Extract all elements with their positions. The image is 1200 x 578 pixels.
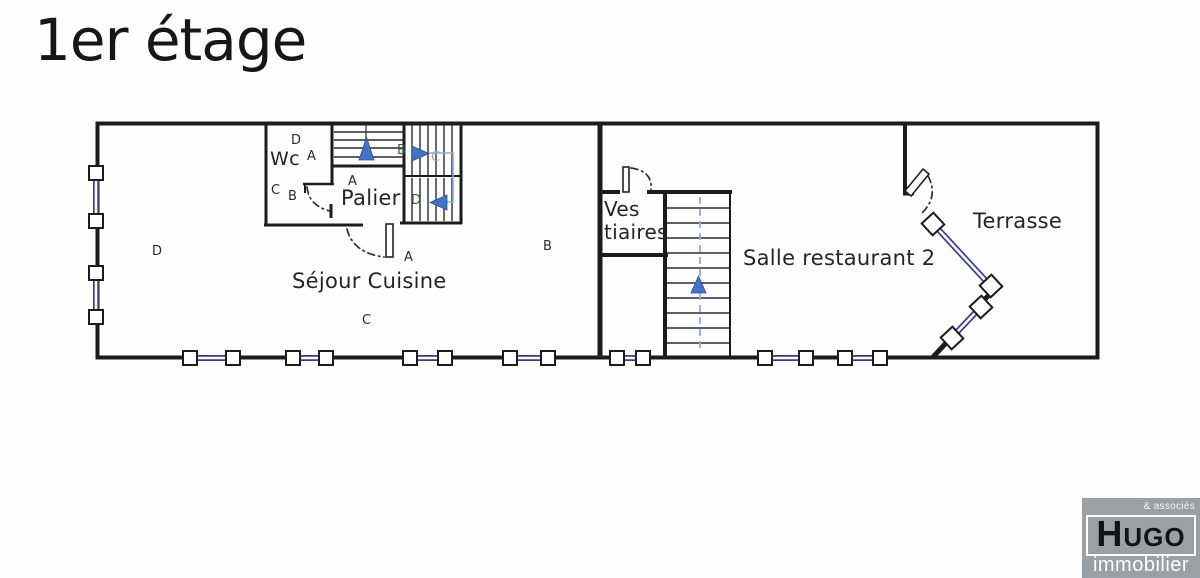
room-label-sejour-cuisine: Séjour Cuisine: [292, 269, 447, 293]
zone-marker: A: [307, 150, 316, 163]
arrow-up-central-stairs: [691, 276, 706, 293]
zone-marker: B: [288, 190, 297, 203]
room-label-vestiaires-line2: tiaires: [604, 221, 668, 244]
zone-marker: C: [431, 151, 440, 164]
terrace-glazing: [922, 213, 1003, 357]
room-label-terrasse: Terrasse: [973, 209, 1062, 233]
arrow-left-lower-run: [430, 195, 447, 210]
floor-plan-drawing: [0, 0, 1200, 578]
brand-subtitle: immobilier: [1082, 554, 1200, 577]
zone-marker: A: [348, 175, 357, 188]
zone-marker: C: [271, 184, 280, 197]
zone-marker: D: [291, 134, 301, 147]
floor-plan-page: 1er étage: [0, 0, 1200, 578]
room-label-wc: Wc: [270, 148, 300, 170]
zone-marker: C: [362, 314, 371, 327]
brand-tagline: & associés: [1144, 501, 1195, 512]
stairs-central: [667, 208, 729, 343]
brand-name-box: HUGO: [1086, 515, 1196, 556]
room-label-vestiaires-line1: Ves: [604, 198, 668, 221]
brand-name: HUGO: [1096, 521, 1185, 550]
zone-marker: B: [543, 240, 552, 253]
zone-marker: D: [152, 245, 162, 258]
room-label-vestiaires: Ves tiaires: [604, 198, 668, 244]
zone-marker: D: [411, 194, 421, 207]
zone-marker: B: [397, 144, 406, 157]
zone-marker: A: [404, 251, 413, 264]
room-label-salle-restaurant: Salle restaurant 2: [743, 246, 935, 270]
room-label-palier: Palier: [341, 186, 401, 210]
brand-logo: & associés HUGO immobilier: [1082, 498, 1200, 578]
